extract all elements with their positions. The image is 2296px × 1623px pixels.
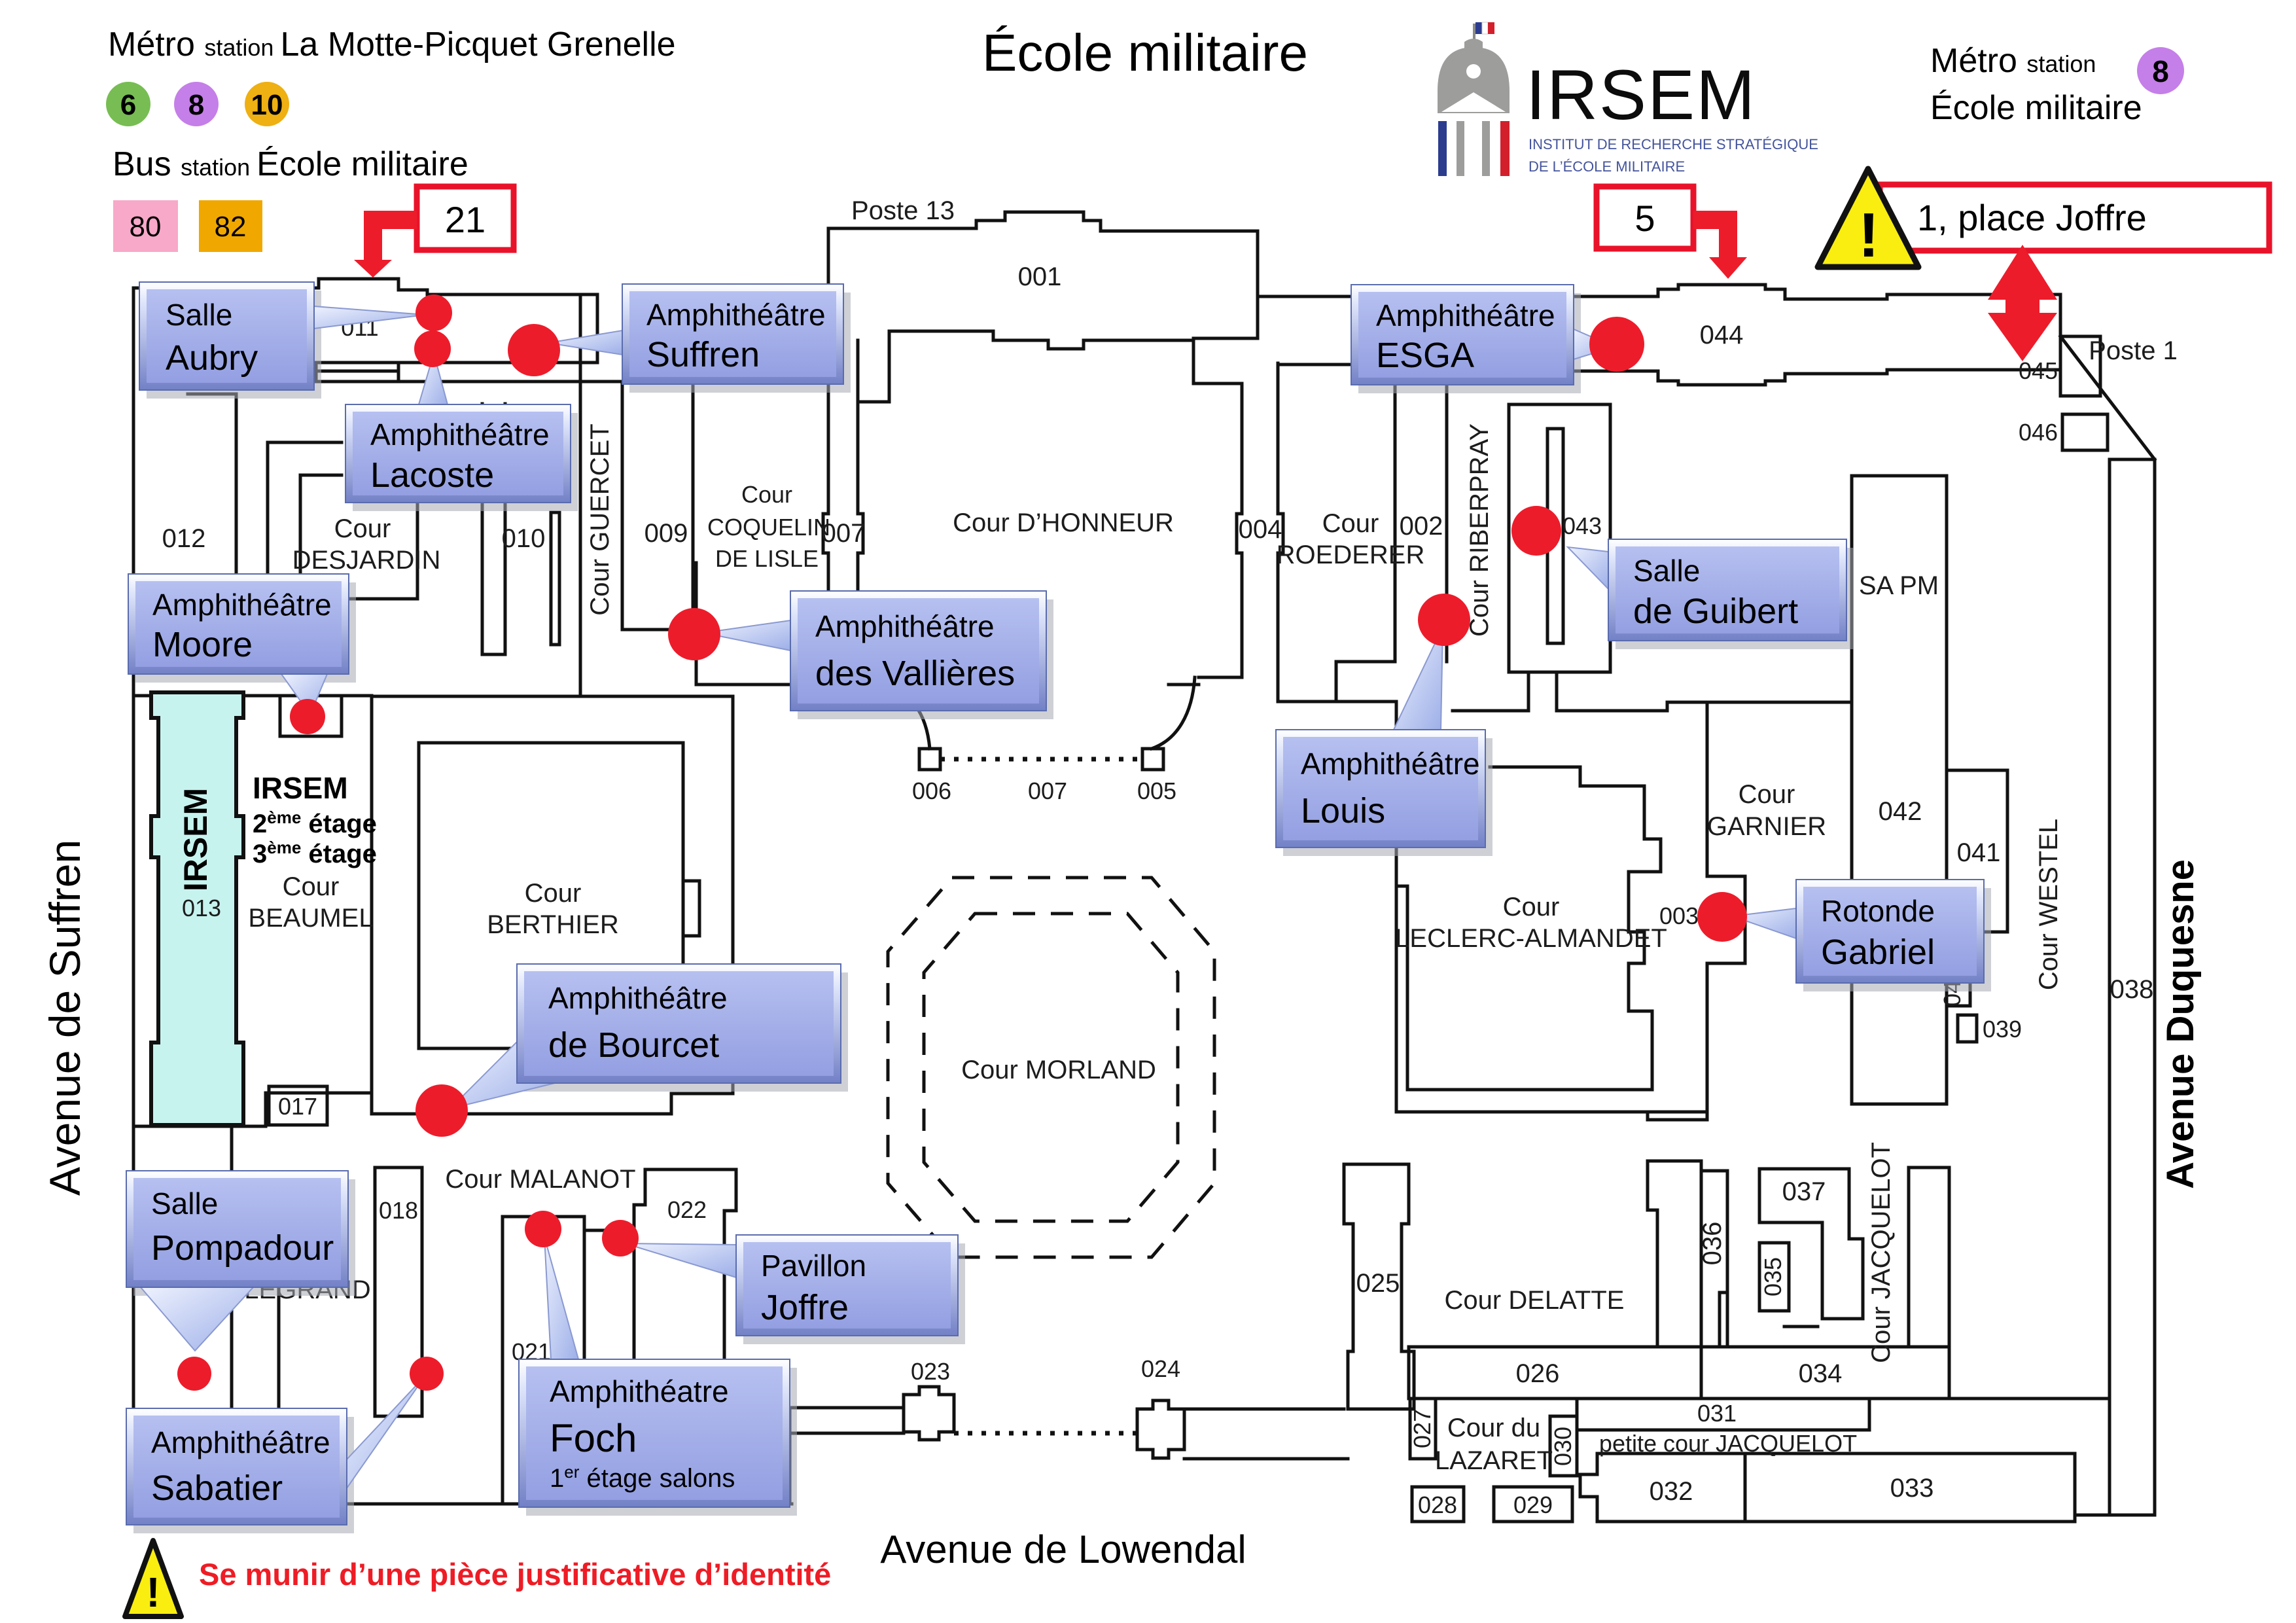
svg-text:Gabriel: Gabriel [1821,933,1935,972]
svg-text:Moore: Moore [152,625,253,664]
svg-text:Cour: Cour [1322,509,1379,538]
svg-text:004: 004 [1239,515,1282,544]
svg-text:10: 10 [251,89,283,121]
svg-text:009: 009 [645,519,688,548]
svg-text:1, place Joffre: 1, place Joffre [1917,197,2147,238]
svg-text:8: 8 [2152,54,2169,88]
svg-text:Cour WESTEL: Cour WESTEL [2034,819,2063,990]
svg-text:Cour: Cour [1739,780,1795,809]
svg-text:027: 027 [1409,1409,1436,1448]
svg-text:029: 029 [1513,1491,1553,1518]
svg-text:025: 025 [1356,1269,1400,1298]
svg-text:ROEDERER: ROEDERER [1277,541,1425,569]
svg-text:017: 017 [278,1093,317,1120]
svg-text:002: 002 [1400,512,1443,541]
svg-text:032: 032 [1650,1477,1693,1506]
svg-text:des Vallières: des Vallières [815,654,1015,693]
svg-text:Se munir d’une pièce justifica: Se munir d’une pièce justificative d’ide… [199,1557,831,1592]
svg-text:007: 007 [1028,777,1067,804]
svg-text:Cour: Cour [334,514,391,543]
svg-text:21: 21 [445,199,486,240]
svg-text:Sabatier: Sabatier [151,1469,283,1508]
svg-text:Cour D’HONNEUR: Cour D’HONNEUR [953,508,1174,537]
svg-text:BEAUMEL: BEAUMEL [248,904,373,933]
svg-text:de Guibert: de Guibert [1633,592,1798,631]
svg-text:COQUELIN: COQUELIN [707,514,830,541]
svg-text:046: 046 [2019,419,2058,446]
svg-text:001: 001 [1018,262,1062,291]
svg-text:5: 5 [1634,198,1655,239]
svg-text:BERTHIER: BERTHIER [487,910,619,939]
svg-text:8: 8 [188,89,204,121]
svg-text:010: 010 [502,524,546,553]
svg-text:Pavillon: Pavillon [761,1249,866,1283]
svg-text:013: 013 [182,895,221,921]
svg-text:037: 037 [1782,1177,1826,1206]
svg-text:IRSEM: IRSEM [1526,55,1756,134]
svg-text:Cour JACQUELOT: Cour JACQUELOT [1867,1142,1896,1363]
svg-text:Amphithéâtre: Amphithéâtre [1376,298,1555,332]
svg-text:Poste 1: Poste 1 [2089,336,2178,365]
svg-text:!: ! [1858,200,1879,270]
svg-text:006: 006 [912,777,951,804]
svg-text:Cour: Cour [1503,893,1560,921]
svg-text:SA PM: SA PM [1859,571,1939,600]
svg-text:Amphithéatre: Amphithéatre [550,1374,729,1408]
svg-text:Foch: Foch [550,1416,637,1460]
svg-text:!: ! [146,1569,160,1616]
svg-text:LECLERC-ALMANDET: LECLERC-ALMANDET [1395,924,1667,953]
svg-text:022: 022 [667,1196,707,1223]
svg-text:Cour: Cour [525,879,582,908]
svg-text:031: 031 [1697,1400,1737,1427]
svg-text:042: 042 [1879,797,1922,826]
svg-text:044: 044 [1700,321,1744,349]
svg-text:DESJARDIN: DESJARDIN [292,546,441,575]
svg-text:038: 038 [2110,975,2154,1004]
svg-text:Amphithéâtre: Amphithéâtre [646,298,826,332]
svg-text:Louis: Louis [1301,791,1385,830]
svg-text:028: 028 [1418,1491,1457,1518]
svg-text:Avenue de Suffren: Avenue de Suffren [41,840,89,1196]
svg-text:6: 6 [120,89,136,121]
svg-text:023: 023 [911,1358,950,1385]
svg-text:Amphithéâtre: Amphithéâtre [152,588,332,622]
svg-text:INSTITUT DE RECHERCHE STRATÉGI: INSTITUT DE RECHERCHE STRATÉGIQUE [1528,136,1818,152]
svg-text:036: 036 [1698,1222,1727,1266]
svg-text:030: 030 [1549,1427,1576,1466]
svg-text:Amphithéâtre: Amphithéâtre [370,418,550,452]
svg-text:039: 039 [1983,1016,2022,1043]
svg-text:Amphithéâtre: Amphithéâtre [151,1425,330,1459]
svg-text:Cour DELATTE: Cour DELATTE [1445,1286,1625,1315]
svg-text:Amphithéâtre: Amphithéâtre [1301,747,1480,781]
svg-text:Avenue de Lowendal: Avenue de Lowendal [880,1527,1246,1571]
svg-text:École militaire: École militaire [982,24,1308,82]
svg-text:Poste 13: Poste 13 [851,196,955,225]
svg-text:005: 005 [1137,777,1176,804]
svg-text:Amphithéâtre: Amphithéâtre [548,981,728,1015]
svg-text:033: 033 [1890,1474,1934,1503]
svg-text:Joffre: Joffre [761,1288,849,1327]
svg-text:041: 041 [1957,838,2001,867]
svg-text:Bus station École militaire: Bus station École militaire [113,145,468,183]
svg-text:École militaire: École militaire [1930,89,2142,127]
svg-text:Salle: Salle [166,298,232,332]
svg-text:Cour du: Cour du [1447,1414,1540,1442]
svg-text:Cour: Cour [283,872,340,901]
svg-text:024: 024 [1141,1355,1180,1382]
svg-text:Cour RIBERPRAY: Cour RIBERPRAY [1465,423,1494,637]
svg-text:018: 018 [379,1197,418,1224]
svg-text:80: 80 [130,211,162,243]
svg-text:Rotonde: Rotonde [1821,894,1935,928]
svg-text:045: 045 [2019,357,2058,384]
svg-text:Salle: Salle [1633,554,1700,588]
svg-text:Suffren: Suffren [646,335,760,374]
svg-text:Salle: Salle [151,1186,218,1221]
svg-text:043: 043 [1563,512,1602,539]
svg-text:Cour MORLAND: Cour MORLAND [961,1056,1156,1084]
svg-text:Aubry: Aubry [166,338,258,378]
svg-text:Pompadour: Pompadour [151,1228,334,1268]
svg-text:LAZARET: LAZARET [1435,1446,1553,1475]
svg-text:IRSEM: IRSEM [253,771,348,805]
svg-text:DE LISLE: DE LISLE [715,545,819,572]
svg-text:035: 035 [1759,1257,1786,1296]
svg-text:Métro station La Motte-Picquet: Métro station La Motte-Picquet Grenelle [108,26,676,63]
svg-text:012: 012 [162,524,206,553]
svg-text:IRSEM: IRSEM [177,788,214,891]
svg-text:DE L’ÉCOLE MILITAIRE: DE L’ÉCOLE MILITAIRE [1528,158,1685,175]
svg-text:026: 026 [1516,1359,1560,1388]
svg-text:petite cour JACQUELOT: petite cour JACQUELOT [1599,1430,1857,1457]
svg-text:Cour MALANOT: Cour MALANOT [445,1165,635,1194]
svg-text:82: 82 [215,211,247,243]
svg-text:de Bourcet: de Bourcet [548,1026,719,1065]
svg-text:Cour: Cour [741,481,792,508]
svg-text:Cour GUERCET: Cour GUERCET [586,423,614,615]
svg-text:Amphithéâtre: Amphithéâtre [815,609,995,643]
svg-text:ESGA: ESGA [1376,336,1474,375]
svg-text:Avenue Duquesne: Avenue Duquesne [2159,859,2202,1189]
svg-text:034: 034 [1799,1359,1843,1388]
svg-text:Lacoste: Lacoste [370,455,494,495]
svg-text:GARNIER: GARNIER [1707,812,1826,841]
